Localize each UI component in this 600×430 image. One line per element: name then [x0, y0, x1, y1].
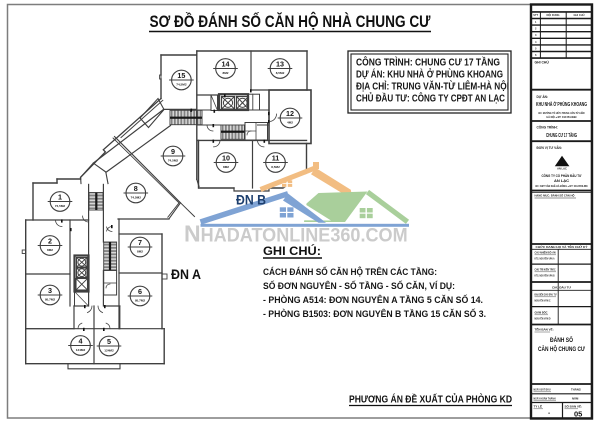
- svg-text:1: 1: [58, 193, 62, 202]
- svg-text:2: 2: [48, 237, 52, 246]
- svg-text:STT: STT: [533, 13, 538, 17]
- svg-text:CHUNG CƯ 17 TẦNG: CHUNG CƯ 17 TẦNG: [546, 132, 577, 139]
- svg-text:ĐỊA CHỈ: TRUNG VĂN-TỪ LIÊM-HÀ: ĐỊA CHỈ: TRUNG VĂN-TỪ LIÊM-HÀ NỘI: [356, 81, 509, 93]
- svg-text:8: 8: [134, 184, 138, 193]
- svg-text:ĐƠN VỊ TƯ VẤN:: ĐƠN VỊ TƯ VẤN:: [537, 146, 562, 150]
- svg-text:4M2: 4M2: [287, 120, 293, 124]
- svg-text:AN LẠC: AN LẠC: [554, 178, 569, 183]
- svg-text:ĐC: KĐT VĂN KHÊ-HÀ ĐÔNG ● ĐT:: ĐC: KĐT VĂN KHÊ-HÀ ĐÔNG ● ĐT: 043.3553.8…: [536, 185, 589, 188]
- svg-text:124M2: 124M2: [76, 348, 86, 352]
- svg-text:CHỦ NHIỆM ĐỒ ÁN: CHỦ NHIỆM ĐỒ ÁN: [535, 250, 556, 255]
- svg-text:ĐN B: ĐN B: [236, 193, 266, 208]
- svg-text:PHƯƠNG ÁN ĐỀ XUẤT CỦA PHÒNG KD: PHƯƠNG ÁN ĐỀ XUẤT CỦA PHÒNG KD: [349, 393, 512, 406]
- svg-text:DỰ ÁN:: DỰ ÁN:: [537, 94, 549, 99]
- svg-text:CHỦ ĐẦU TƯ: CÔNG TY CPĐT AN LẠ: CHỦ ĐẦU TƯ: CÔNG TY CPĐT AN LẠC: [356, 93, 505, 105]
- svg-text:THÁNG: THÁNG: [571, 387, 581, 392]
- svg-text:8M2: 8M2: [137, 249, 143, 253]
- svg-text:GIÁM ĐỐC: GIÁM ĐỐC: [535, 310, 549, 315]
- svg-text:NGUYỄN VĂN C: NGUYỄN VĂN C: [535, 298, 551, 303]
- svg-text:13: 13: [276, 60, 284, 69]
- svg-text:74,5M2: 74,5M2: [168, 158, 179, 162]
- svg-text:- PHÒNG A514: ĐƠN NGUYÊN A TẦN: - PHÒNG A514: ĐƠN NGUYÊN A TẦNG 5 CĂN SỐ…: [263, 294, 483, 305]
- svg-text:CHỨC DANH HỌ VÀ TÊN: CHỨC DANH HỌ VÀ TÊN CHỮ KÝ: [536, 244, 588, 249]
- svg-text:ĐN A: ĐN A: [171, 267, 201, 282]
- svg-text:7: 7: [138, 238, 142, 247]
- svg-text:11: 11: [272, 154, 280, 163]
- svg-text:9: 9: [171, 147, 175, 156]
- svg-text:12: 12: [286, 109, 294, 118]
- svg-text:05: 05: [574, 410, 582, 419]
- svg-text:124M2: 124M2: [104, 348, 114, 352]
- svg-text:NĂM: NĂM: [572, 396, 579, 401]
- svg-text:CHỦ ĐẦU TƯ: CHỦ ĐẦU TƯ: [552, 285, 571, 290]
- svg-text:6: 6: [138, 287, 142, 296]
- svg-text:8M2: 8M2: [222, 71, 228, 75]
- svg-text:KTS. NGUYỄN VĂN B: KTS. NGUYỄN VĂN B: [535, 273, 555, 278]
- svg-text:CÁCH ĐÁNH SỐ CĂN HỘ TRÊN CÁC T: CÁCH ĐÁNH SỐ CĂN HỘ TRÊN CÁC TẦNG:: [263, 266, 437, 277]
- svg-text:DỰ ÁN: KHU NHÀ Ở PHÙNG KHOANG: DỰ ÁN: KHU NHÀ Ở PHÙNG KHOANG: [356, 69, 503, 81]
- svg-text:CÔNG TRÌNH: CHUNG CƯ 17 TẦNG: CÔNG TRÌNH: CHUNG CƯ 17 TẦNG: [356, 57, 500, 69]
- svg-text:15: 15: [177, 71, 185, 80]
- svg-text:ĐẠI DIỆN CHỦ ĐẦU TƯ: ĐẠI DIỆN CHỦ ĐẦU TƯ: [535, 292, 557, 297]
- svg-text:ĐÁNH SỐ: ĐÁNH SỐ: [550, 337, 573, 344]
- svg-text:KHU NHÀ Ở PHÙNG KHOANG: KHU NHÀ Ở PHÙNG KHOANG: [536, 101, 587, 108]
- svg-text:HẠNG MỤC: ĐÁNH SỐ CĂN HỘ: HẠNG MỤC: ĐÁNH SỐ CĂN HỘ: [535, 193, 576, 198]
- svg-text:8,5M2: 8,5M2: [271, 165, 280, 169]
- svg-text:8M2: 8M2: [223, 165, 229, 169]
- svg-text:SỐ BẢN VẼ:: SỐ BẢN VẼ:: [565, 404, 583, 409]
- svg-text:CHỦ TRÌ KIẾN TRÚC: CHỦ TRÌ KIẾN TRÚC: [535, 267, 557, 272]
- svg-text:74,5M2: 74,5M2: [176, 82, 187, 86]
- svg-text:8M2: 8M2: [47, 248, 53, 252]
- svg-text:NGÀY BẮT ĐẦU: NGÀY BẮT ĐẦU: [534, 387, 551, 392]
- svg-text:TỶ LỆ: TỶ LỆ: [534, 404, 543, 409]
- svg-text:TÊN BẢN VẼ:: TÊN BẢN VẼ:: [535, 327, 554, 332]
- svg-text:GHI CHÚ:: GHI CHÚ:: [263, 244, 321, 258]
- svg-text:8,5M2: 8,5M2: [276, 71, 285, 75]
- svg-text:KTS. NGUYỄN VĂN A: KTS. NGUYỄN VĂN A: [535, 256, 555, 261]
- svg-text:95,7M2: 95,7M2: [45, 297, 56, 301]
- svg-text:CĂN HỘ CHUNG CƯ: CĂN HỘ CHUNG CƯ: [538, 345, 585, 353]
- svg-text:5: 5: [107, 337, 111, 346]
- svg-text:3: 3: [48, 286, 52, 295]
- svg-text:GHI CHÚ: GHI CHÚ: [535, 60, 550, 65]
- svg-text:10: 10: [222, 154, 230, 163]
- svg-text:-: -: [548, 410, 550, 417]
- svg-text:SỐ ĐƠN NGUYÊN - SỐ TẦNG - SỐ C: SỐ ĐƠN NGUYÊN - SỐ TẦNG - SỐ CĂN, VÍ DỤ:: [263, 280, 455, 291]
- svg-text:4: 4: [79, 337, 83, 346]
- svg-text:CÔNG TRÌNH:: CÔNG TRÌNH:: [537, 125, 558, 130]
- svg-text:74,5M2: 74,5M2: [55, 204, 66, 208]
- svg-text:95,7M2: 95,7M2: [135, 298, 146, 302]
- svg-text:AN LẠC: AN LẠC: [557, 167, 567, 171]
- svg-text:NHADATONLINE360.COM: NHADATONLINE360.COM: [184, 221, 408, 247]
- svg-text:74,5M2: 74,5M2: [131, 195, 142, 199]
- svg-text:NGUYỄN VĂN D: NGUYỄN VĂN D: [535, 316, 551, 321]
- svg-text:NGÀY HOÀN THÀNH: NGÀY HOÀN THÀNH: [534, 396, 556, 401]
- svg-text:14: 14: [222, 60, 230, 69]
- svg-text:- PHÒNG B1503: ĐƠN NGUYÊN B TẦ: - PHÒNG B1503: ĐƠN NGUYÊN B TẦNG 15 CĂN …: [263, 308, 486, 319]
- svg-text:SƠ ĐỒ ĐÁNH SỐ CĂN HỘ NHÀ CHUNG: SƠ ĐỒ ĐÁNH SỐ CĂN HỘ NHÀ CHUNG CƯ: [150, 11, 431, 31]
